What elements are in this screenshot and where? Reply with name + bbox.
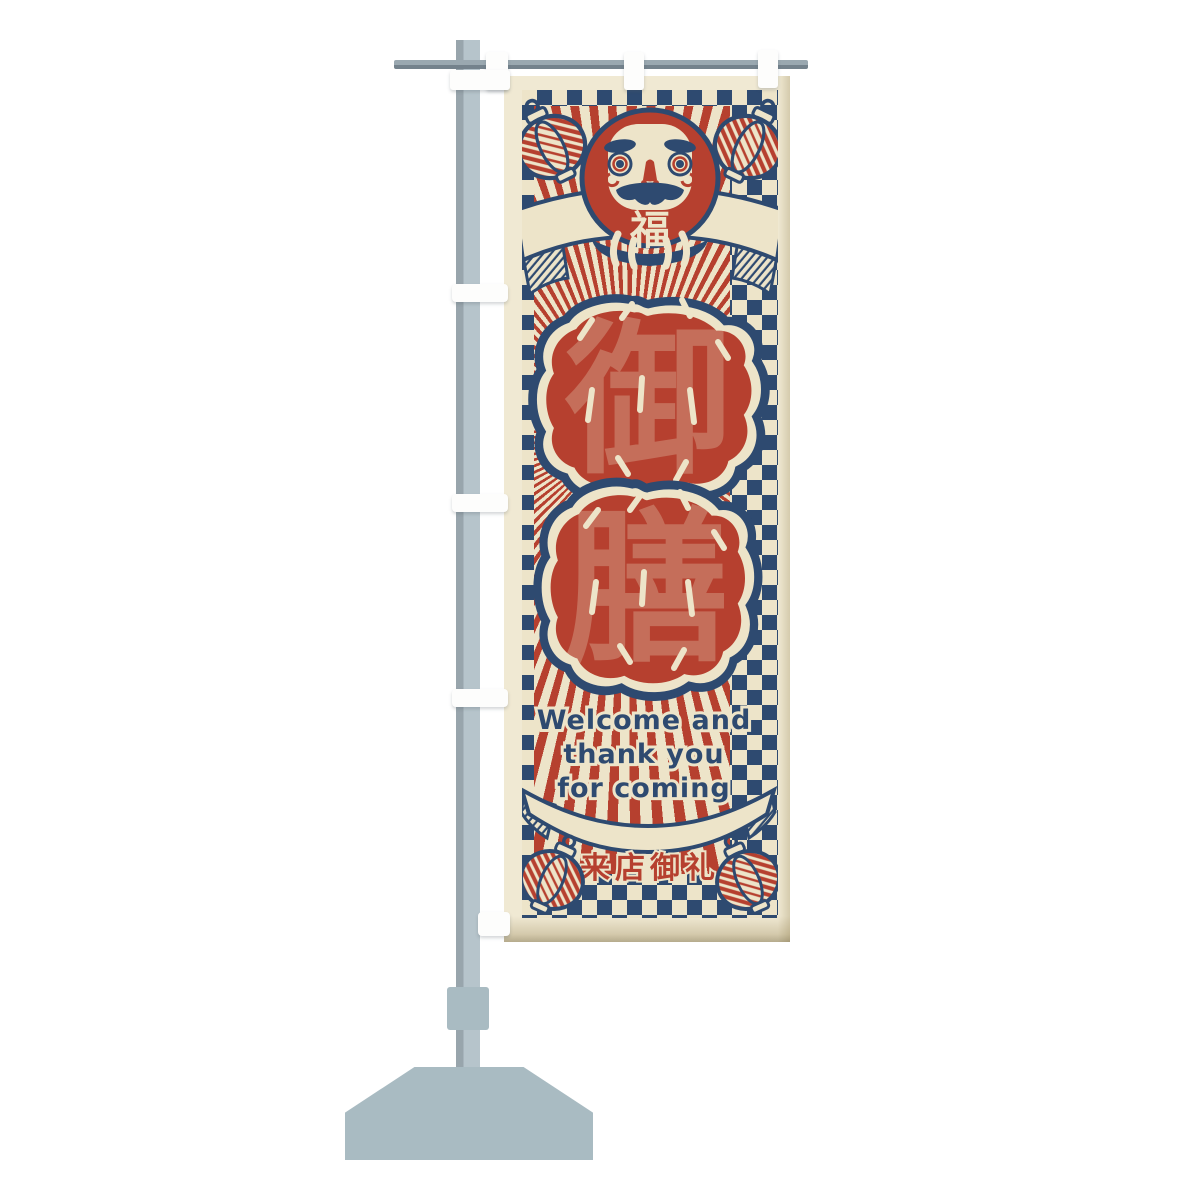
pole-clip-lower [452, 689, 508, 707]
crossbar-clip-left-band [450, 70, 510, 90]
banner-bottom-fold [504, 916, 790, 942]
banner-artwork: 福 御 膳 Welcome and [522, 90, 778, 918]
product-image-nobori-banner: { "banner": { "daruma": { "belly_charact… [0, 0, 1200, 1200]
flag-pole [456, 40, 480, 1070]
pole-clip-middle [452, 494, 508, 512]
daruma-belly-character: 福 [629, 208, 670, 254]
pole-clip-upper [452, 284, 508, 302]
nobori-banner: 福 御 膳 Welcome and [504, 76, 790, 942]
crossbar-clip-middle [624, 52, 644, 90]
crossbar-clip-right [758, 50, 778, 88]
title-kanji-2: 膳 [565, 493, 730, 685]
welcome-message: Welcome and thank you for coming [537, 705, 752, 804]
welcome-line-2: thank you [563, 739, 724, 770]
flag-crossbar [394, 60, 808, 69]
pole-clip-bottom [478, 912, 510, 936]
title-character-2: 膳 [538, 482, 759, 696]
banner-right-shade [778, 76, 790, 942]
title-kanji-1: 御 [565, 305, 731, 497]
welcome-line-1: Welcome and [537, 705, 752, 736]
welcome-line-3: for coming [557, 773, 731, 804]
footer-ribbon-text: 来店御礼 [580, 851, 720, 886]
daruma-icon: 福 [582, 110, 718, 266]
pole-collar [447, 987, 489, 1030]
title-character-1: 御 [533, 299, 766, 505]
stand-base [345, 1067, 593, 1160]
